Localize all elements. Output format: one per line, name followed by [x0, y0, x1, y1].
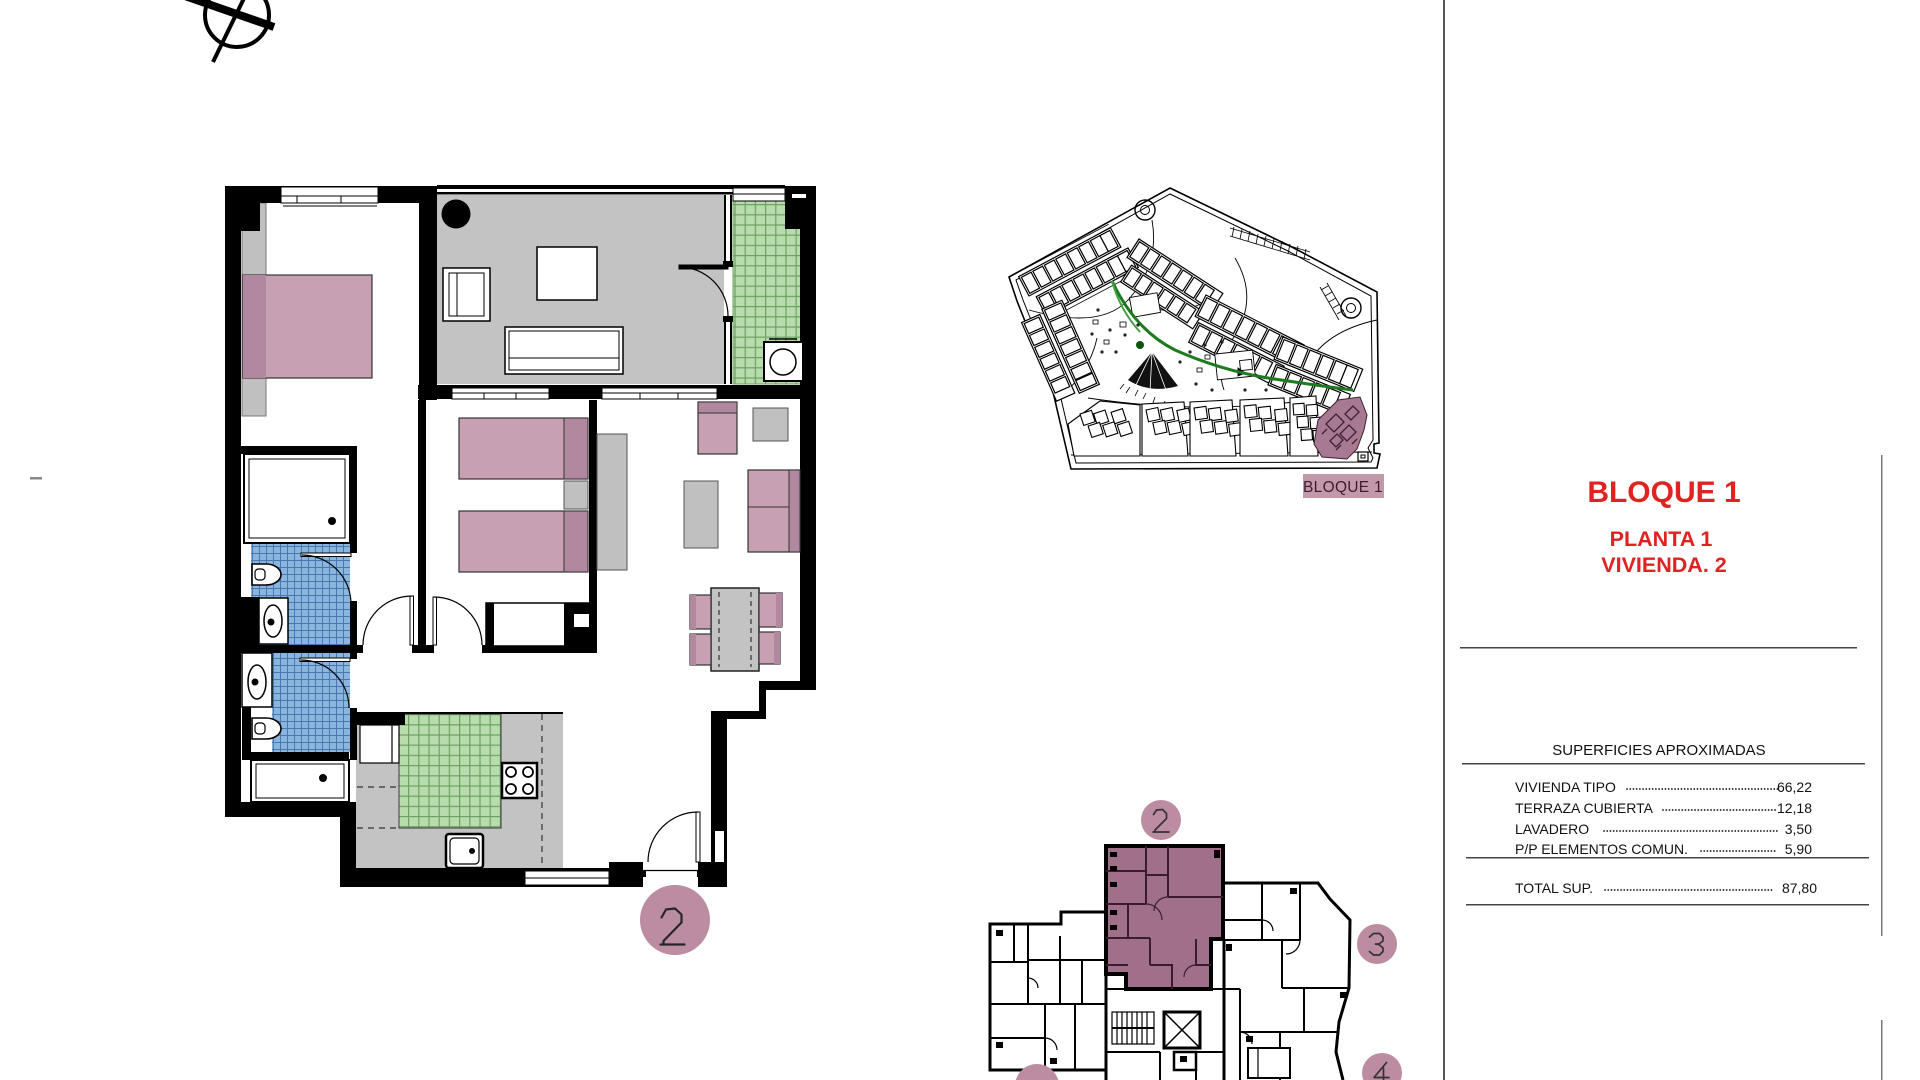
svg-text:P/P ELEMENTOS COMUN.: P/P ELEMENTOS COMUN.	[1515, 841, 1688, 857]
svg-text:PLANTA 1: PLANTA 1	[1610, 527, 1713, 551]
svg-text:VIVIENDA TIPO: VIVIENDA TIPO	[1515, 779, 1616, 795]
svg-text:87,80: 87,80	[1782, 880, 1817, 896]
svg-text:3,50: 3,50	[1785, 821, 1812, 837]
svg-text:BLOQUE 1: BLOQUE 1	[1587, 476, 1740, 509]
svg-text:TERRAZA CUBIERTA: TERRAZA CUBIERTA	[1515, 800, 1654, 816]
svg-text:66,22: 66,22	[1777, 779, 1812, 795]
svg-text:5,90: 5,90	[1785, 841, 1812, 857]
svg-text:VIVIENDA. 2: VIVIENDA. 2	[1601, 553, 1726, 577]
svg-text:TOTAL SUP.: TOTAL SUP.	[1515, 880, 1593, 896]
svg-text:LAVADERO: LAVADERO	[1515, 821, 1589, 837]
svg-text:BLOQUE 1: BLOQUE 1	[1303, 479, 1383, 496]
svg-text:SUPERFICIES APROXIMADAS: SUPERFICIES APROXIMADAS	[1552, 742, 1765, 759]
svg-text:12,18: 12,18	[1777, 800, 1812, 816]
